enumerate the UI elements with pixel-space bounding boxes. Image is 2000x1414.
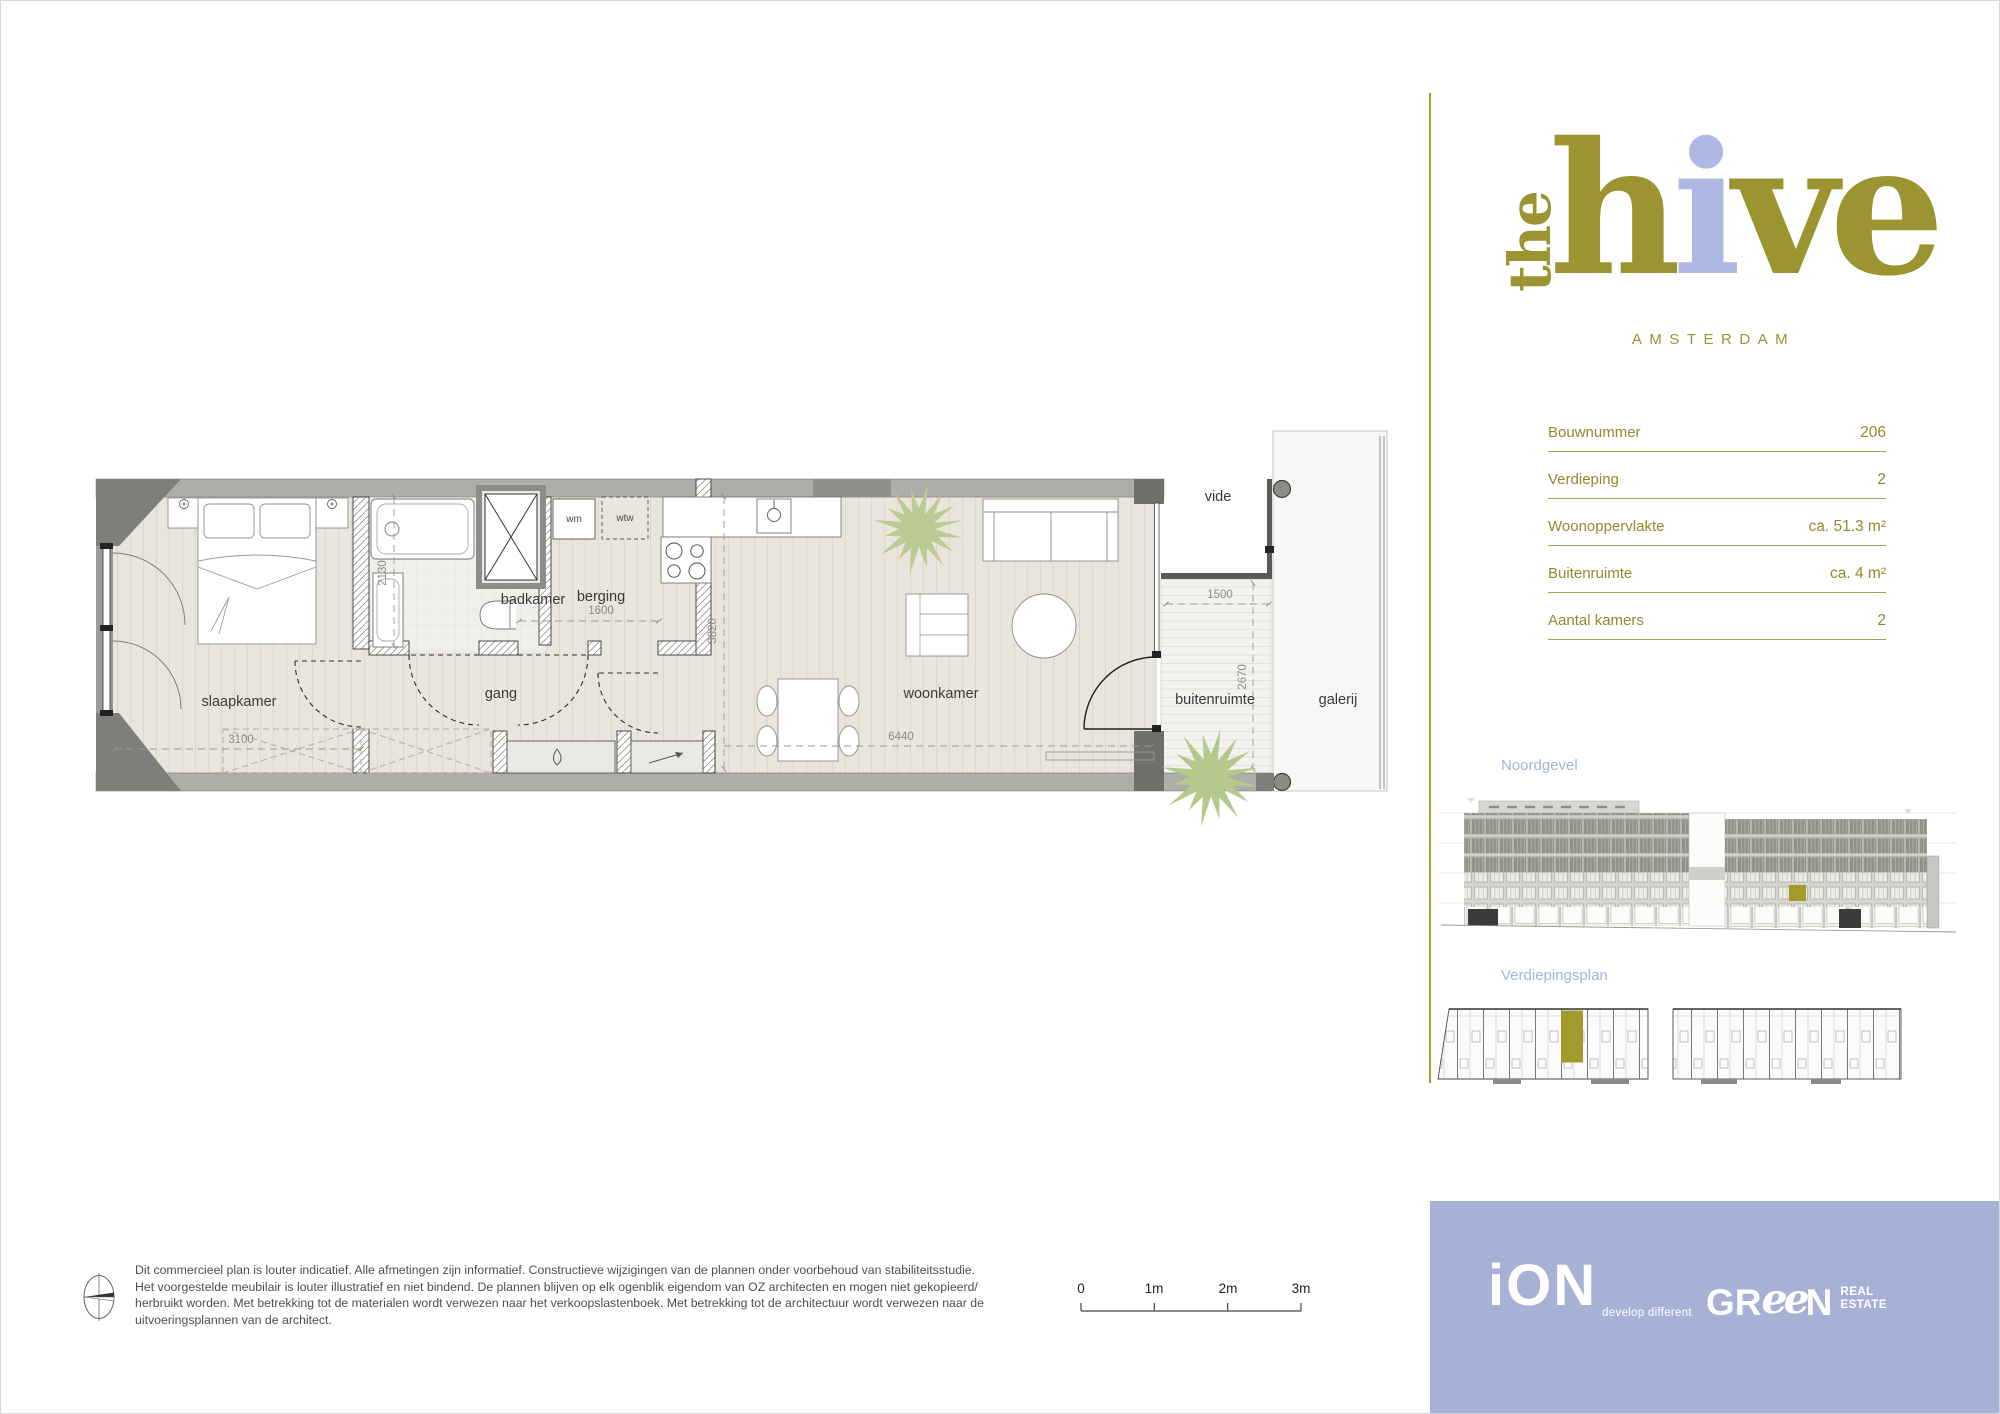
- disclaimer-line: uitvoeringsplannen van de architect.: [135, 1312, 995, 1329]
- equipment-label: wm: [565, 514, 582, 525]
- info-label: Verdieping: [1548, 471, 1619, 488]
- dimension-label: 3820: [707, 618, 719, 644]
- chair: [757, 686, 777, 716]
- green-n: N: [1806, 1282, 1833, 1323]
- info-row-verdieping: Verdieping 2: [1548, 461, 1886, 499]
- info-value: ca. 4 m²: [1830, 565, 1886, 583]
- verdiepingsplan-left: [1438, 1009, 1648, 1084]
- north-arrow-icon: [71, 1267, 127, 1329]
- info-row-buitenruimte: Buitenruimte ca. 4 m²: [1548, 555, 1886, 593]
- room-label: berging: [577, 589, 625, 605]
- galerij-walkway: [1273, 431, 1387, 791]
- info-label: Woonoppervlakte: [1548, 518, 1664, 535]
- dimension-label: 1500: [1207, 589, 1233, 601]
- logo-hive: hive: [1549, 118, 1936, 300]
- scale-label: 3m: [1292, 1281, 1311, 1296]
- city-label: AMSTERDAM: [1461, 331, 1966, 348]
- chair: [839, 726, 859, 756]
- info-value: ca. 51.3 m²: [1808, 518, 1886, 536]
- room-label: woonkamer: [903, 686, 979, 702]
- meter-cabinets: [507, 741, 703, 773]
- verdiepingsplan-drawing: [1431, 1001, 1971, 1096]
- noordgevel-elevation: [1431, 786, 1971, 946]
- info-label: Buitenruimte: [1548, 565, 1632, 582]
- armchair: [906, 594, 968, 656]
- equipment-label: wtw: [615, 513, 634, 524]
- scale-label: 0: [1077, 1281, 1085, 1296]
- room-label: gang: [485, 686, 517, 702]
- highlighted-unit-plan: [1561, 1011, 1583, 1063]
- room-label: slaapkamer: [202, 694, 277, 710]
- info-row-woonoppervlakte: Woonoppervlakte ca. 51.3 m²: [1548, 508, 1886, 546]
- round-table: [1012, 594, 1076, 658]
- info-label: Aantal kamers: [1548, 612, 1644, 629]
- unit-info-table: Bouwnummer 206 Verdieping 2 Woonoppervla…: [1548, 414, 1886, 649]
- hive-logo: the hive: [1461, 96, 1966, 301]
- green-suffix: REAL ESTATE: [1840, 1281, 1887, 1312]
- room-label: badkamer: [501, 592, 566, 608]
- sofa: [983, 499, 1118, 561]
- disclaimer-line: Dit commercieel plan is louter indicatie…: [135, 1262, 995, 1279]
- bathtub: [371, 499, 474, 559]
- dimension-label: 2670: [1237, 664, 1249, 690]
- column: [1274, 774, 1291, 791]
- info-label: Bouwnummer: [1548, 424, 1641, 441]
- room-label: buitenruimte: [1175, 692, 1255, 708]
- scale-bar: 0 1m 2m 3m: [1057, 1275, 1313, 1321]
- dimension-label: 6440: [888, 731, 914, 743]
- green-real: REAL: [1840, 1286, 1887, 1299]
- disclaimer-text: Dit commercieel plan is louter indicatie…: [135, 1262, 995, 1328]
- dining-table: [778, 679, 838, 761]
- dimension-label: 3100: [228, 734, 254, 746]
- info-value: 206: [1860, 424, 1886, 442]
- green-ee: ee: [1762, 1275, 1806, 1323]
- highlighted-unit-elevation: [1789, 885, 1806, 901]
- logo-letter-i: i: [1672, 102, 1732, 316]
- verdiepingsplan-right: [1673, 1009, 1901, 1084]
- disclaimer-line: Het voorgestelde meubilair is louter ill…: [135, 1279, 995, 1296]
- logo-letter-h: h: [1549, 102, 1672, 316]
- room-label: galerij: [1319, 692, 1358, 708]
- green-real-estate-logo: GReeN REAL ESTATE: [1706, 1281, 1887, 1322]
- green-gr: GR: [1706, 1282, 1762, 1323]
- dimension-label: 1600: [588, 605, 614, 617]
- green-estate: ESTATE: [1840, 1299, 1887, 1312]
- green-name: GReeN: [1706, 1281, 1832, 1322]
- chair: [839, 686, 859, 716]
- info-row-bouwnummer: Bouwnummer 206: [1548, 414, 1886, 452]
- ion-tagline: develop different: [1602, 1307, 1692, 1319]
- info-row-aantal-kamers: Aantal kamers 2: [1548, 602, 1886, 640]
- dimension-label: 2130: [377, 560, 389, 586]
- chair: [757, 726, 777, 756]
- section-label-verdiepingsplan: Verdiepingsplan: [1501, 967, 1608, 984]
- disclaimer-line: herbruikt worden. Met betrekking tot de …: [135, 1295, 995, 1312]
- scale-label: 1m: [1145, 1281, 1164, 1296]
- info-value: 2: [1877, 471, 1886, 489]
- ion-logo: iON: [1488, 1257, 1597, 1315]
- elevator-shaft: [479, 488, 543, 586]
- brochure-page: slaapkamerbadkamerberginggangwoonkamerbu…: [0, 0, 2000, 1414]
- brand-panel: iON develop different GReeN REAL ESTATE: [1430, 1201, 2000, 1414]
- info-value: 2: [1877, 612, 1886, 630]
- section-label-noordgevel: Noordgevel: [1501, 757, 1578, 774]
- floorplan-drawing: slaapkamerbadkamerberginggangwoonkamerbu…: [1, 1, 1441, 871]
- column: [1274, 481, 1291, 498]
- room-label: vide: [1205, 489, 1232, 505]
- scale-label: 2m: [1219, 1281, 1238, 1296]
- logo-letters-ve: ve: [1732, 102, 1936, 316]
